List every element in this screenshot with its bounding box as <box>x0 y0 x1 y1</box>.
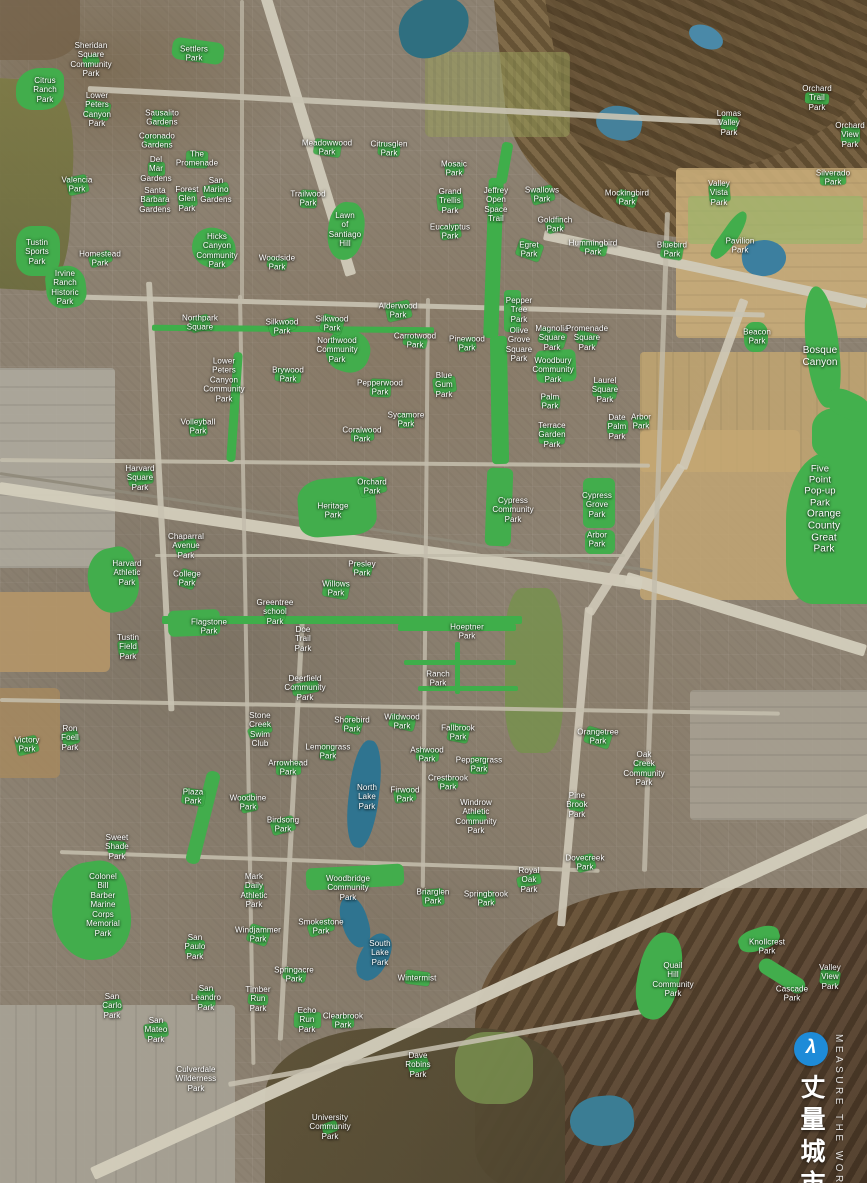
san-diego-creek-strip-feature <box>185 770 222 866</box>
road-harvard-feature <box>238 295 255 1065</box>
park-label: Alderwood Park <box>379 302 418 321</box>
park-label: Palm Park <box>541 393 560 412</box>
park-label: Windjammer Park <box>235 926 281 945</box>
park-label: Dave Robins Park <box>405 1051 431 1079</box>
park-label: Cypress Community Park <box>492 496 533 524</box>
park-label: Briarglen Park <box>417 888 450 907</box>
park-label: Ranch Park <box>426 670 450 689</box>
park-label: Forest Glen Park <box>175 185 198 213</box>
park-label: Citrusglen Park <box>370 140 407 159</box>
park-label: Orangetree Park <box>577 728 618 747</box>
park-label: Orchard Park <box>357 478 387 497</box>
park-label: Colonel Bill Barber Marine Corps Memoria… <box>86 872 120 938</box>
park-label: Citrus Ranch Park <box>33 76 57 104</box>
park-label: Valley Vista Park <box>708 179 730 207</box>
park-label: Pine Brook Park <box>566 791 587 819</box>
park-label: Culverdale Wilderness Park <box>176 1065 217 1093</box>
satellite-map-canvas: λ 丈量城市 MEASURE THE WORLD Sheridan Square… <box>0 0 867 1183</box>
park-label: Willows Park <box>322 580 350 599</box>
park-label: San Carlo Park <box>102 992 122 1020</box>
road-top-vertical-feature <box>240 0 244 300</box>
park-label: Arbor Park <box>631 413 651 432</box>
park-label: Smokestone Park <box>298 918 343 937</box>
park-label: Royal Oak Park <box>519 866 540 894</box>
park-label: Valencia Park <box>62 176 93 195</box>
brand-name-chinese: 丈量城市 <box>793 1074 829 1183</box>
park-label: Doe Trail Park <box>295 625 312 653</box>
brand-logo-icon: λ <box>794 1032 828 1066</box>
park-label: Crestbrook Park <box>428 774 468 793</box>
park-label: Timber Run Park <box>245 985 270 1013</box>
park-label: Homestead Park <box>79 250 121 269</box>
park-label: College Park <box>173 570 201 589</box>
park-label: Lower Peters Canyon Park <box>83 91 111 129</box>
park-label: Birdsong Park <box>267 816 299 835</box>
park-label: Clearbrook Park <box>323 1012 363 1031</box>
great-park-staging-feature <box>640 430 800 600</box>
park-label: Lawn of Santiago Hill <box>329 211 361 249</box>
park-label: Silverado Park <box>816 169 850 188</box>
park-label: Windrow Athletic Community Park <box>455 798 496 836</box>
park-label: Cypress Grove Park <box>582 491 612 519</box>
park-label: Springbrook Park <box>464 890 508 909</box>
park-label: Sheridan Square Community Park <box>70 41 111 79</box>
watermark: λ 丈量城市 MEASURE THE WORLD <box>793 1032 844 1183</box>
park-label: South Lake Park <box>369 939 390 967</box>
park-label: Hummingbird Park <box>569 239 618 258</box>
park-label: Bosque Canyon <box>802 345 837 369</box>
corner-top-left-feature <box>0 0 80 60</box>
park-label: Harvard Square Park <box>125 464 154 492</box>
park-label: Magnolia Square Park <box>535 324 568 352</box>
park-label: Tustin Field Park <box>117 633 139 661</box>
park-label: Meadowwood Park <box>302 139 352 158</box>
park-label: Sycamore Park <box>388 411 425 430</box>
park-label: Arbor Park <box>587 531 607 550</box>
ranch-strip-1-feature <box>404 660 516 665</box>
park-label: Woodbury Community Park <box>532 356 573 384</box>
park-label: Northwood Community Park <box>316 336 357 364</box>
park-label: Woodside Park <box>259 254 295 273</box>
park-label: Mockingbird Park <box>605 189 649 208</box>
park-label: Silkwood Park <box>316 315 349 334</box>
park-label: Eucalyptus Park <box>430 223 470 242</box>
park-label: Beacon Park <box>743 328 771 347</box>
park-label: Greentree school Park <box>257 598 294 626</box>
park-label: Olive Grove Square Park <box>506 326 532 364</box>
ranch-strip-vertical-feature <box>455 642 460 694</box>
park-label: Del Mar Gardens <box>140 155 171 183</box>
desert-left-1-feature <box>0 592 110 672</box>
park-label: Quail Hill Community Park <box>652 961 693 999</box>
park-label: San Marino Gardens <box>200 176 231 204</box>
park-label: Coronado Gardens <box>139 132 175 151</box>
park-label: Firwood Park <box>390 786 419 805</box>
park-label: Sausalito Gardens <box>145 109 179 128</box>
park-label: Five Point Pop-up Park <box>804 464 835 509</box>
park-label: University Community Park <box>309 1113 350 1141</box>
brand-tagline: MEASURE THE WORLD <box>833 1034 844 1183</box>
park-label: Dovecreek Park <box>565 854 604 873</box>
park-label: Santa Barbara Gardens <box>139 186 170 214</box>
park-label: Pavilion Park <box>726 237 755 256</box>
urban-left-strip-feature <box>0 368 115 568</box>
park-label: Plaza Park <box>183 788 204 807</box>
park-label: Shorebird Park <box>334 716 370 735</box>
park-label: Stone Creek Swim Club <box>249 711 271 749</box>
park-label: Oak Creek Community Park <box>623 750 664 788</box>
park-label: Wildwood Park <box>384 713 419 732</box>
park-label: Knollcrest Park <box>749 938 785 957</box>
park-label: Presley Park <box>348 560 375 579</box>
park-label: Victory Park <box>14 736 39 755</box>
park-label: Promenade Square Park <box>566 324 608 352</box>
park-label: Carrotwood Park <box>394 332 436 351</box>
park-label: Woodbridge Community Park <box>326 874 370 902</box>
park-label: Goldfinch Park <box>538 216 573 235</box>
park-label: Sweet Shade Park <box>105 833 129 861</box>
park-label: Orchard Trail Park <box>802 84 832 112</box>
park-label: Egret Park <box>519 241 539 260</box>
park-label: Tustin Sports Park <box>25 238 49 266</box>
park-label: Cascade Park <box>776 985 808 1004</box>
road-trabuco-feature <box>155 554 625 557</box>
park-label: North Lake Park <box>357 783 377 811</box>
park-label: Wintermist <box>398 973 437 982</box>
park-label: Jeffrey Open Space Trail <box>484 186 509 224</box>
park-label: Orange County Great Park <box>807 508 841 555</box>
park-label: Coralwood Park <box>342 426 381 445</box>
park-label: Pepper Tree Park <box>506 296 532 324</box>
park-label: San Paulo Park <box>185 933 206 961</box>
park-label: Grand Trellis Park <box>439 187 462 215</box>
road-yale-feature <box>421 298 430 888</box>
park-label: Echo Run Park <box>298 1006 317 1034</box>
park-label: Irvine Ranch Historic Park <box>51 269 78 307</box>
park-label: Silkwood Park <box>266 318 299 337</box>
park-label: San Leandro Park <box>191 984 221 1012</box>
park-label: Laurel Square Park <box>592 376 618 404</box>
park-label: Date Palm Park <box>608 413 627 441</box>
park-label: Flagstone Park <box>191 618 227 637</box>
park-label: Settlers Park <box>180 45 208 64</box>
park-label: Volleyball Park <box>181 418 216 437</box>
park-label: Ashwood Park <box>410 746 444 765</box>
park-label: Peppergrass Park <box>456 756 502 775</box>
park-label: Fallbrook Park <box>441 724 475 743</box>
park-label: Swallows Park <box>525 186 559 205</box>
park-label: Valley View Park <box>819 963 841 991</box>
park-label: Mark Daily Athletic Park <box>240 872 267 910</box>
park-label: Pepperwood Park <box>357 379 403 398</box>
park-label: Chaparral Avenue Park <box>168 532 204 560</box>
park-label: Ron Foell Park <box>61 724 79 752</box>
park-label: Harvard Athletic Park <box>112 559 141 587</box>
park-label: Bluebird Park <box>657 241 687 260</box>
park-label: Mosaic Park <box>441 160 467 179</box>
park-label: Hicks Canyon Community Park <box>196 232 237 270</box>
park-label: San Mateo Park <box>145 1016 168 1044</box>
park-label: Hoeptner Park <box>450 623 484 642</box>
park-label: Pinewood Park <box>449 335 485 354</box>
park-label: Lemongrass Park <box>305 743 350 762</box>
park-label: Blue Gum Park <box>435 371 453 399</box>
orchard-top-center-feature <box>425 52 570 137</box>
park-label: Brywood Park <box>272 366 304 385</box>
urban-spectrum-feature <box>690 690 867 820</box>
park-label: Orchard View Park <box>835 121 865 149</box>
park-label: Northpark Square <box>182 314 218 333</box>
park-label: Arrowhead Park <box>268 759 308 778</box>
park-label: Lower Peters Canyon Community Park <box>203 356 244 403</box>
park-label: Deerfield Community Park <box>284 674 325 702</box>
jeffrey-trail-top-feature <box>495 141 513 184</box>
park-label: Lomas Valley Park <box>717 109 742 137</box>
park-label: Heritage Park <box>317 502 348 521</box>
golf-oak-creek-feature <box>505 588 563 753</box>
park-label: Springacre Park <box>274 966 314 985</box>
park-label: Trailwood Park <box>290 190 325 209</box>
park-label: Woodbine Park <box>230 794 267 813</box>
park-label: Terrace Garden Park <box>538 421 565 449</box>
park-label: The Promenade <box>176 150 218 169</box>
